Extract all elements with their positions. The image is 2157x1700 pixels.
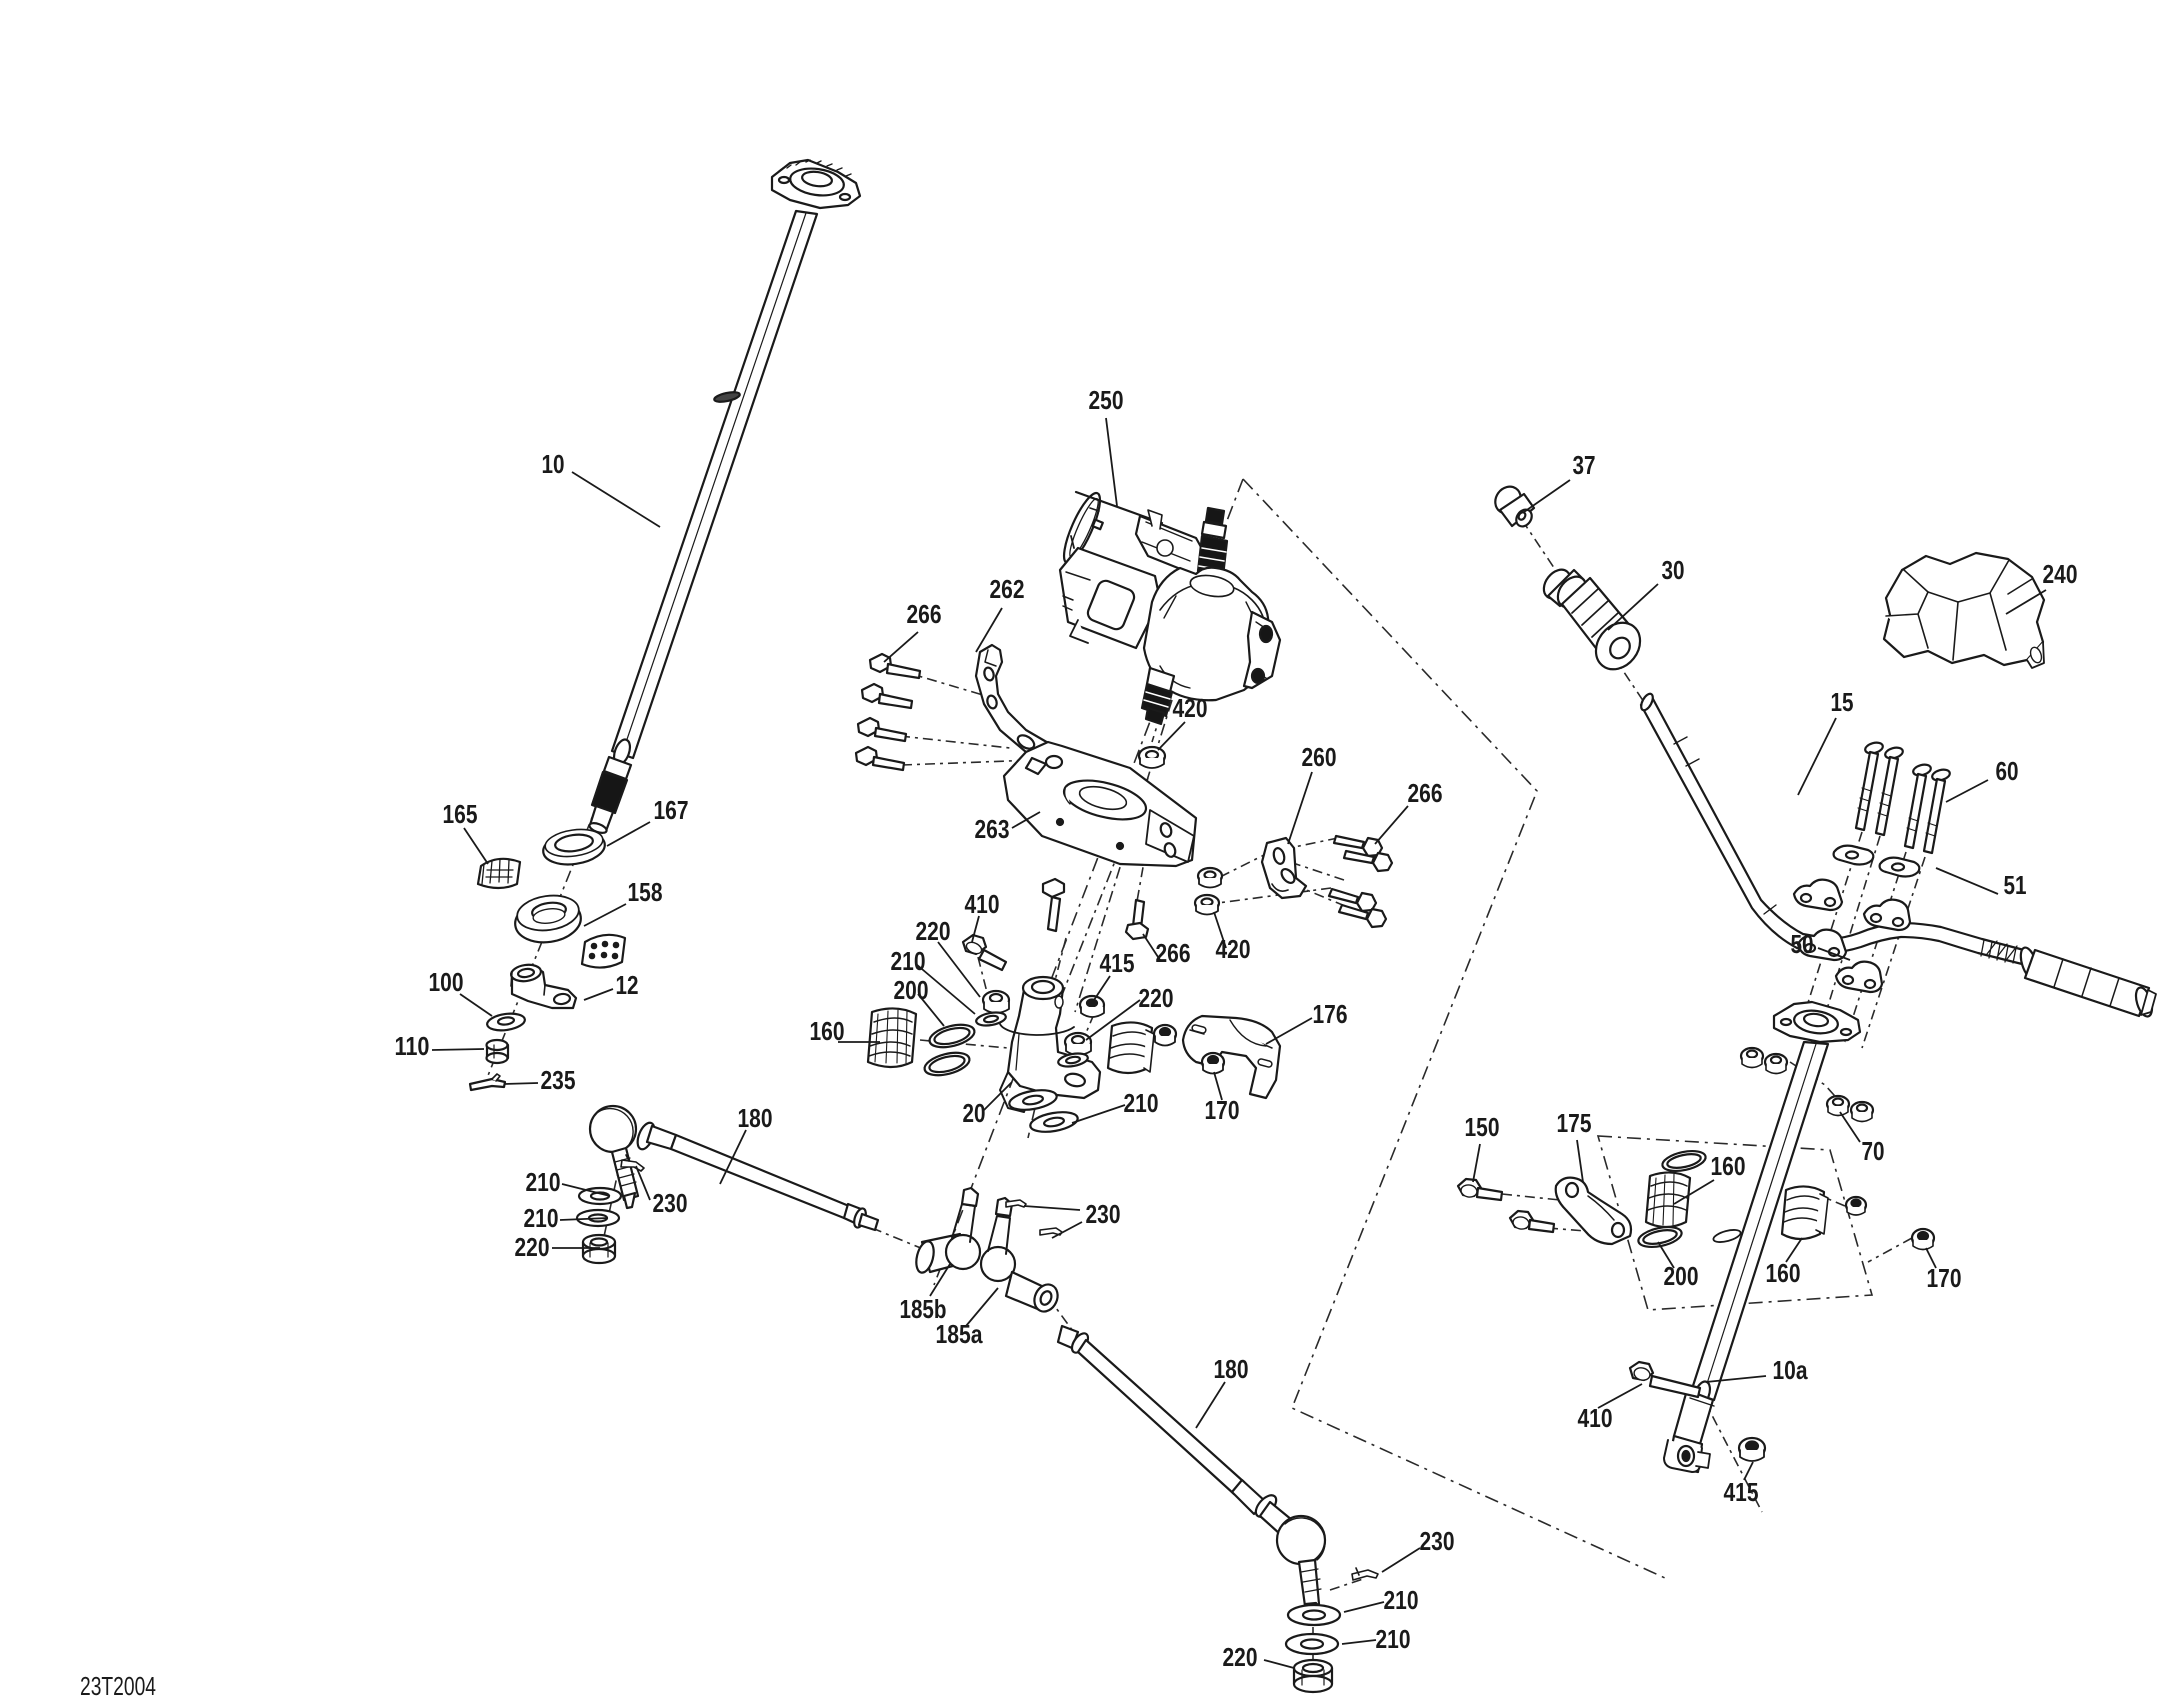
svg-text:250: 250 — [1089, 385, 1124, 415]
svg-text:415: 415 — [1100, 948, 1135, 978]
svg-text:200: 200 — [1664, 1261, 1699, 1291]
svg-text:420: 420 — [1173, 693, 1208, 723]
svg-text:230: 230 — [1420, 1526, 1455, 1556]
svg-text:220: 220 — [1223, 1642, 1258, 1672]
svg-text:200: 200 — [894, 975, 929, 1005]
svg-text:60: 60 — [1996, 756, 2019, 786]
svg-text:262: 262 — [990, 574, 1025, 604]
svg-text:170: 170 — [1205, 1095, 1240, 1125]
svg-text:150: 150 — [1465, 1112, 1500, 1142]
svg-text:210: 210 — [1384, 1585, 1419, 1615]
svg-text:266: 266 — [907, 599, 942, 629]
svg-text:30: 30 — [1662, 555, 1685, 585]
svg-text:240: 240 — [2043, 559, 2078, 589]
svg-text:220: 220 — [515, 1232, 550, 1262]
svg-text:175: 175 — [1557, 1108, 1592, 1138]
svg-text:220: 220 — [916, 916, 951, 946]
svg-text:220: 220 — [1139, 983, 1174, 1013]
svg-text:70: 70 — [1862, 1136, 1885, 1166]
svg-text:410: 410 — [1578, 1403, 1613, 1433]
svg-text:15: 15 — [1831, 687, 1854, 717]
svg-text:210: 210 — [1124, 1088, 1159, 1118]
svg-text:230: 230 — [1086, 1199, 1121, 1229]
svg-text:12: 12 — [616, 970, 639, 1000]
svg-text:210: 210 — [1376, 1624, 1411, 1654]
svg-text:180: 180 — [738, 1103, 773, 1133]
svg-text:110: 110 — [395, 1031, 430, 1061]
svg-text:230: 230 — [653, 1188, 688, 1218]
svg-text:235: 235 — [541, 1065, 576, 1095]
svg-text:263: 263 — [975, 814, 1010, 844]
svg-text:10a: 10a — [1773, 1355, 1808, 1385]
svg-text:210: 210 — [524, 1203, 559, 1233]
svg-text:167: 167 — [654, 795, 689, 825]
svg-text:260: 260 — [1302, 742, 1337, 772]
svg-text:165: 165 — [443, 799, 478, 829]
svg-text:51: 51 — [2004, 870, 2027, 900]
svg-text:160: 160 — [810, 1016, 845, 1046]
svg-text:20: 20 — [963, 1098, 986, 1128]
svg-text:210: 210 — [526, 1167, 561, 1197]
svg-text:160: 160 — [1711, 1151, 1746, 1181]
svg-text:176: 176 — [1313, 999, 1348, 1029]
svg-text:170: 170 — [1927, 1263, 1962, 1293]
svg-text:10: 10 — [542, 449, 565, 479]
svg-text:180: 180 — [1214, 1354, 1249, 1384]
svg-text:100: 100 — [429, 967, 464, 997]
svg-text:415: 415 — [1724, 1477, 1759, 1507]
svg-text:37: 37 — [1573, 450, 1596, 480]
svg-text:160: 160 — [1766, 1258, 1801, 1288]
svg-text:158: 158 — [628, 877, 663, 907]
svg-text:266: 266 — [1408, 778, 1443, 808]
svg-text:185a: 185a — [936, 1319, 983, 1349]
svg-text:50: 50 — [1791, 929, 1814, 959]
svg-text:266: 266 — [1156, 938, 1191, 968]
svg-text:420: 420 — [1216, 934, 1251, 964]
svg-text:410: 410 — [965, 889, 1000, 919]
svg-text:23T2004: 23T2004 — [80, 1671, 156, 1700]
svg-text:210: 210 — [891, 946, 926, 976]
